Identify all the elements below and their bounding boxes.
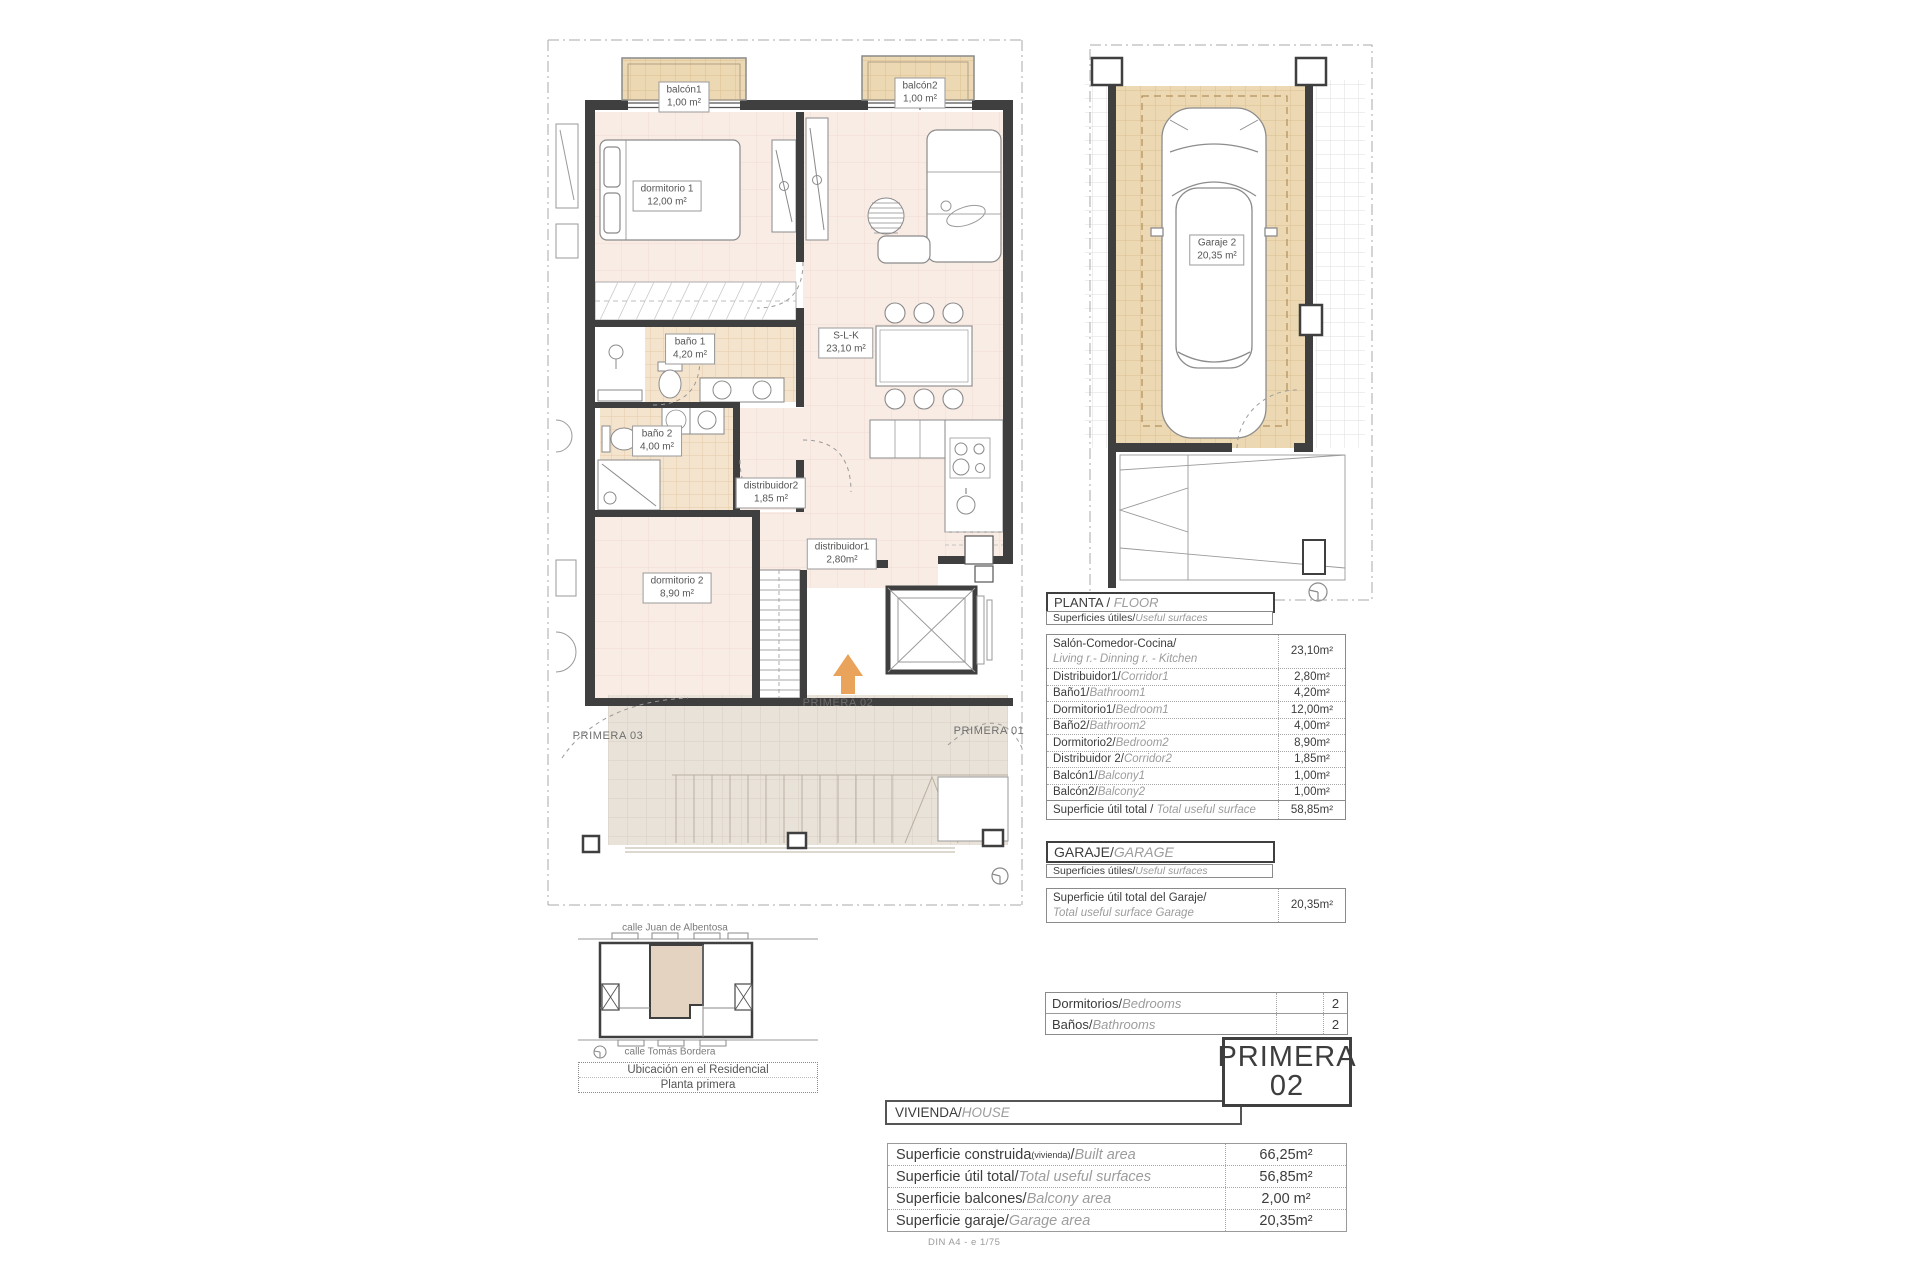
unit-badge: PRIMERA 02: [1222, 1037, 1352, 1107]
room-label-distribuidor1: distribuidor1 2,80m²: [807, 539, 877, 570]
unit-note-primera02: PRIMERA 02: [803, 697, 874, 709]
table-row: Baños/Bathrooms 2: [1046, 1013, 1347, 1034]
street-label-top: calle Juan de Albentosa: [622, 923, 728, 934]
room-label-bano2: baño 2 4,00 m²: [632, 426, 682, 457]
garage-plan: [1085, 45, 1372, 601]
table-row: Salón-Comedor-Cocina/ Living r.- Dinning…: [1047, 635, 1345, 668]
table-row: Balcón2/Balcony2 1,00m²: [1047, 784, 1345, 801]
plan-sheet: balcón1 1,00 m² balcón2 1,00 m² dormitor…: [0, 0, 1920, 1280]
vivienda-table: Superficie construida(vivienda)/Built ar…: [887, 1143, 1347, 1232]
room-label-slk: S-L-K 23,10 m²: [818, 328, 873, 359]
room-label-dormitorio1: dormitorio 1 12,00 m²: [633, 181, 702, 212]
north-indicator-icon: [992, 868, 1008, 884]
table-row: Baño2/Bathroom2 4,00m²: [1047, 718, 1345, 735]
room-label-bano1: baño 1 4,20 m²: [665, 334, 715, 365]
unit-note-primera03: PRIMERA 03: [573, 730, 644, 742]
table-total-row: Superficie útil total / Total useful sur…: [1047, 800, 1345, 819]
garaje-table-header: GARAJE/GARAGE: [1046, 841, 1275, 863]
entrance-arrow-icon: [833, 654, 863, 694]
elevator-shaft: [888, 588, 992, 672]
table-row: Dormitorios/Bedrooms 2: [1046, 993, 1347, 1013]
car-top-view: [1151, 108, 1277, 438]
table-row: Dormitorio2/Bedroom2 8,90m²: [1047, 734, 1345, 751]
garage-north-indicator-icon: [1309, 583, 1327, 601]
garaje-table: Superficie útil total del Garaje/ Total …: [1046, 888, 1346, 923]
room-label-balcon2: balcón2 1,00 m²: [894, 78, 945, 109]
unit-note-primera01: PRIMERA 01: [954, 725, 1025, 737]
location-north-indicator-icon: [594, 1046, 606, 1058]
street-label-bottom: calle Tomás Bordera: [625, 1047, 716, 1058]
table-row: Distribuidor1/Corridor1 2,80m²: [1047, 668, 1345, 685]
room-label-garaje2: Garaje 2 20,35 m²: [1189, 235, 1244, 266]
table-row: Distribuidor 2/Corridor2 1,85m²: [1047, 751, 1345, 768]
sheet-scale-note: DIN A4 - e 1/75: [928, 1237, 1000, 1248]
table-row: Superficie útil total del Garaje/ Total …: [1047, 889, 1345, 922]
room-label-distribuidor2: distribuidor2 1,85 m²: [736, 478, 806, 509]
table-row: Superficie útil total/Total useful surfa…: [888, 1165, 1346, 1187]
planta-table-subheader: Superficies útiles/Useful surfaces: [1046, 611, 1273, 625]
plan-drawing: [0, 0, 1920, 1280]
table-row: Baño1/Bathroom1 4,20m²: [1047, 685, 1345, 702]
planta-table-header: PLANTA / FLOOR: [1046, 592, 1275, 613]
counts-table: Dormitorios/Bedrooms 2 Baños/Bathrooms 2: [1045, 992, 1348, 1035]
room-label-dormitorio2: dormitorio 2 8,90 m²: [643, 573, 712, 604]
location-diagram: [578, 933, 818, 1058]
main-floor-plan: [548, 40, 1022, 905]
table-row: Balcón1/Balcony1 1,00m²: [1047, 767, 1345, 784]
location-caption: Ubicación en el Residencial Planta prime…: [578, 1062, 818, 1093]
room-label-balcon1: balcón1 1,00 m²: [658, 82, 709, 113]
table-row: Dormitorio1/Bedroom1 12,00m²: [1047, 701, 1345, 718]
table-row: Superficie garaje/Garage area 20,35m²: [888, 1209, 1346, 1231]
table-row: Superficie balcones/Balcony area 2,00 m²: [888, 1187, 1346, 1209]
planta-table: Salón-Comedor-Cocina/ Living r.- Dinning…: [1046, 634, 1346, 820]
garaje-table-subheader: Superficies útiles/Useful surfaces: [1046, 864, 1273, 878]
vivienda-table-header: VIVIENDA/HOUSE: [885, 1100, 1242, 1125]
table-row: Superficie construida(vivienda)/Built ar…: [888, 1144, 1346, 1165]
